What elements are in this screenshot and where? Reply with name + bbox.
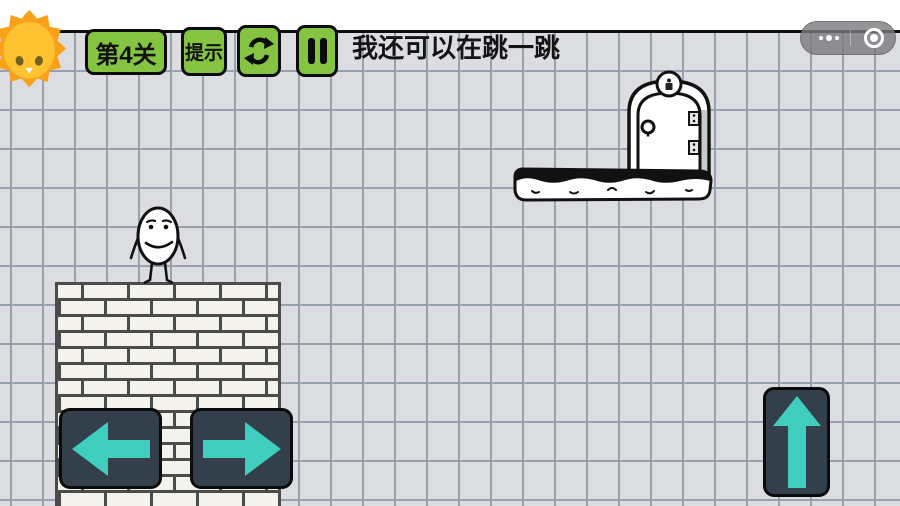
door-hinge-bottom: [689, 141, 699, 154]
record-circle-icon: [870, 34, 878, 42]
game-screen: 第4关 提示 我还可以在跳一跳: [0, 0, 900, 506]
more-dots-icon: [819, 36, 823, 40]
egg-eye-right: [164, 225, 169, 230]
keyhole-icon: [642, 121, 654, 133]
arrow-left-icon: [66, 416, 156, 482]
hint-label: 提示: [185, 38, 223, 65]
egg-character: [120, 198, 200, 290]
more-dots-icon: [826, 35, 832, 41]
hint-button[interactable]: 提示: [181, 27, 227, 76]
miniprogram-capsule: [800, 21, 896, 55]
egg-leg-left: [145, 263, 152, 283]
egg-body: [138, 208, 178, 264]
level-label: 第4关: [95, 35, 156, 70]
egg-leg-right: [165, 263, 172, 283]
capsule-divider: [850, 30, 851, 46]
jump-button[interactable]: [763, 387, 830, 497]
more-options-button[interactable]: [809, 22, 849, 54]
pause-button[interactable]: [296, 25, 338, 77]
level-button[interactable]: 第4关: [85, 29, 167, 75]
egg-eye-left: [149, 225, 154, 230]
speech-text: 我还可以在跳一跳: [352, 33, 560, 63]
sun-logo: [0, 8, 68, 89]
arrow-up-icon: [769, 392, 825, 492]
door-hinge-top: [689, 112, 699, 125]
arrow-right-icon: [197, 416, 287, 482]
pause-icon: [308, 38, 327, 64]
door-emblem-icon: [666, 83, 673, 90]
move-right-button[interactable]: [190, 408, 293, 489]
ink-platform: [510, 164, 716, 206]
move-left-button[interactable]: [59, 408, 162, 489]
restart-button[interactable]: [237, 25, 281, 77]
restart-icon: [244, 35, 274, 67]
close-circle-button[interactable]: [864, 28, 884, 48]
more-dots-icon: [835, 36, 839, 40]
